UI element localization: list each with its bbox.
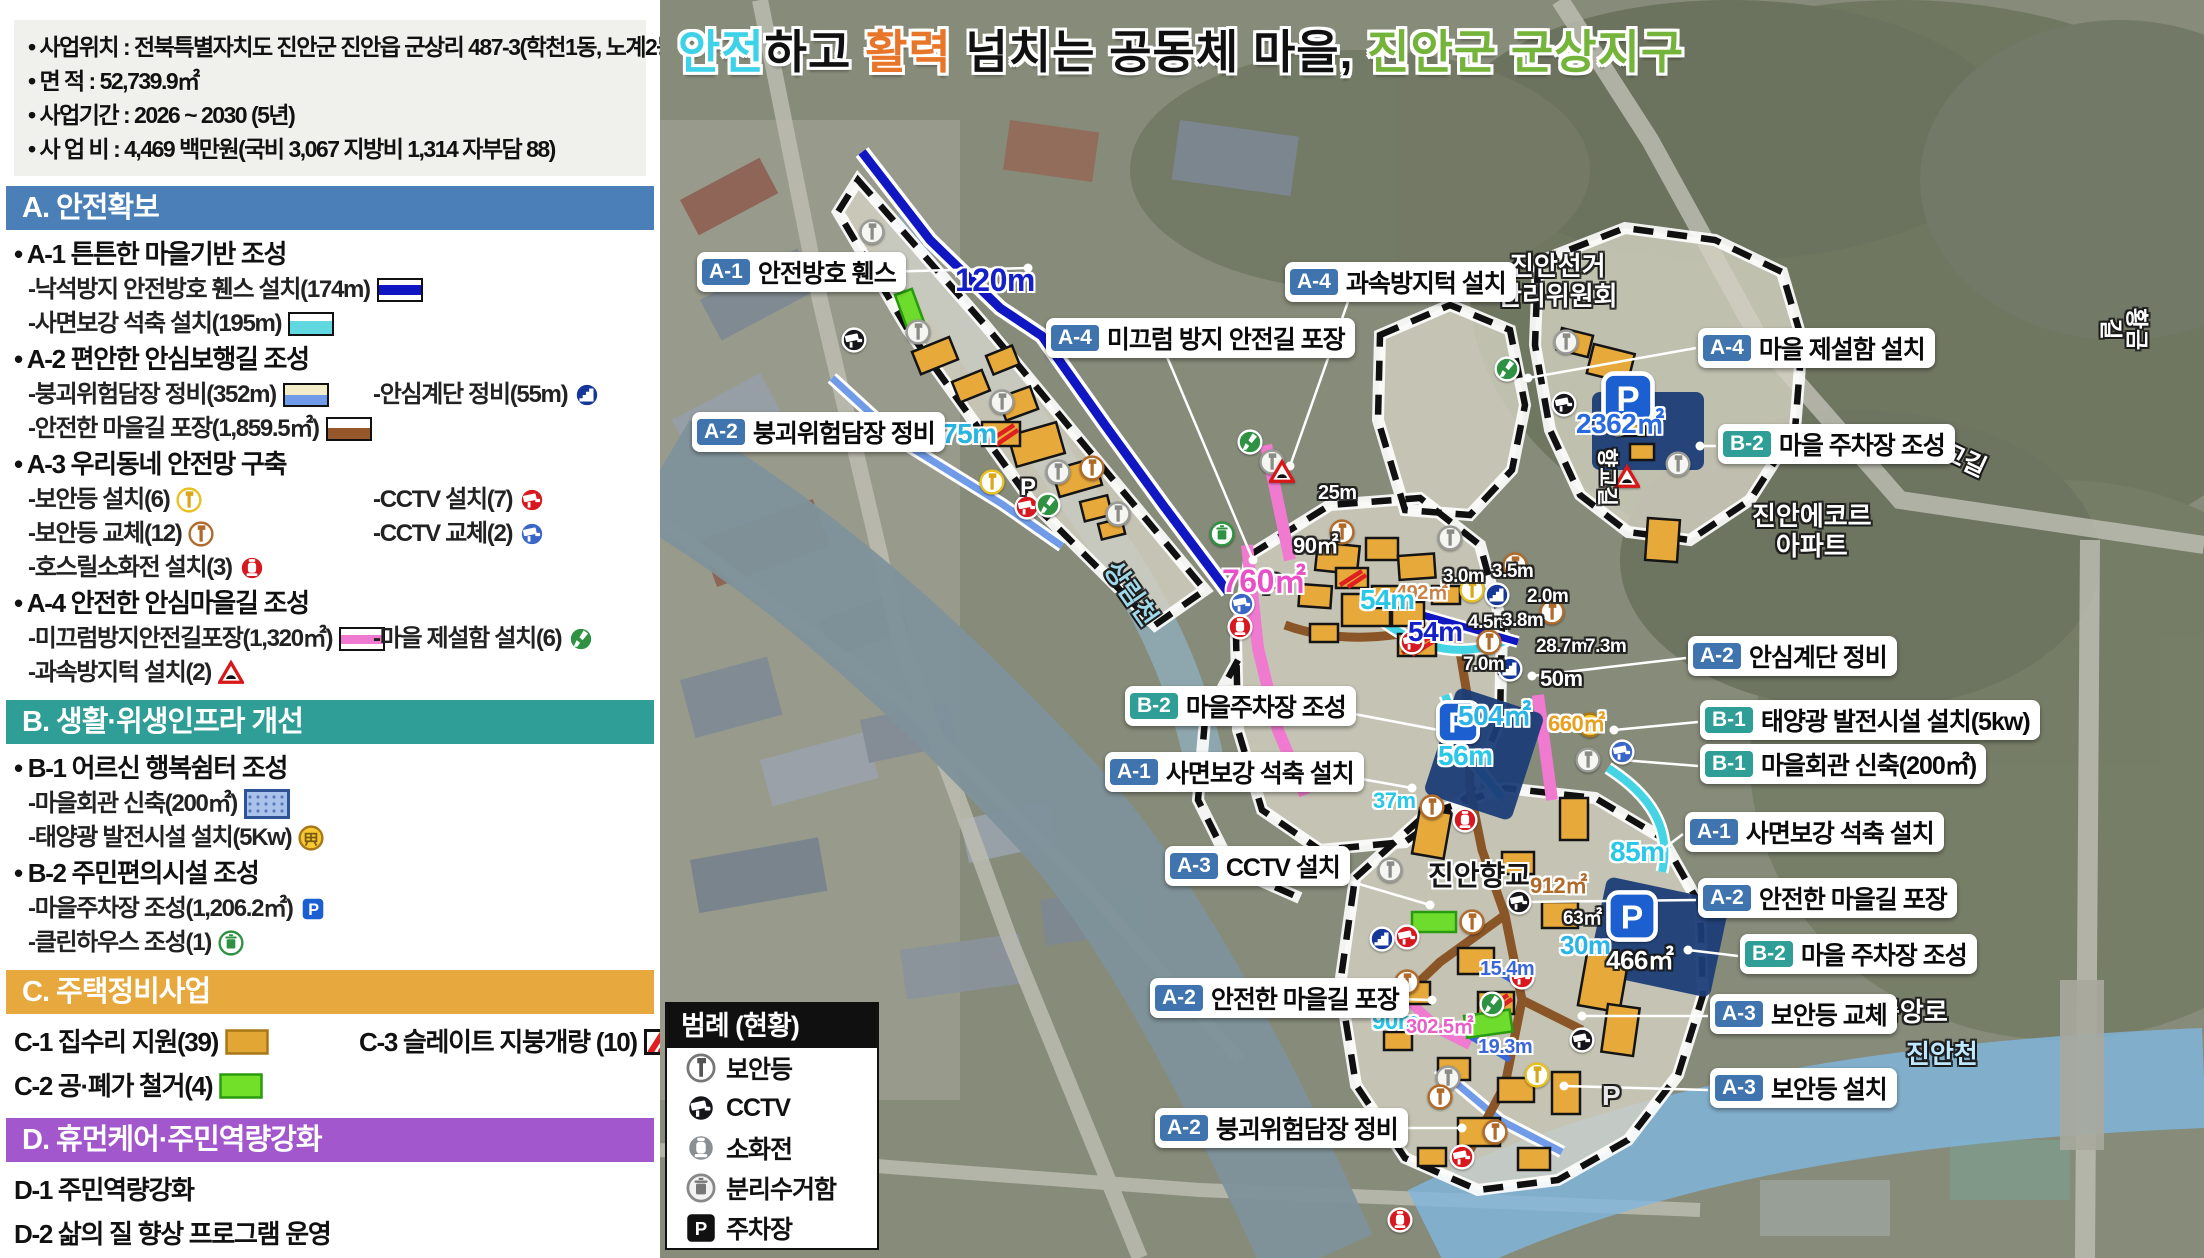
project-info-box: • 사업위치 : 전북특별자치도 진안군 진안읍 군상리 487-3(학천1동,… bbox=[14, 20, 646, 176]
lamp-grey-icon bbox=[905, 319, 931, 345]
callout-label: 마을 주차장 조성 bbox=[1801, 936, 1967, 972]
place-label: P bbox=[1602, 1080, 1621, 1112]
callout-label: 안전방호 휀스 bbox=[758, 254, 896, 290]
item-row: • A-3 우리동네 안전망 구축 bbox=[14, 446, 656, 483]
place-label: P bbox=[1020, 474, 1036, 502]
lamp-yellow-icon bbox=[176, 487, 202, 513]
item-label: D-1 주민역량강화 bbox=[14, 1168, 194, 1212]
item-cell: -과속방지턱 설치(2) bbox=[28, 656, 244, 690]
project-sections: A. 안전확보• A-1 튼튼한 마을기반 조성-낙석방지 안전방호 휀스 설치… bbox=[0, 186, 660, 1256]
item-label: -안전한 마을길 포장(1,859.5㎡) bbox=[28, 412, 319, 446]
bar-navy-icon bbox=[377, 278, 423, 302]
item-cell: • B-1 어르신 행복쉼터 조성 bbox=[14, 750, 287, 787]
cctv-black-icon bbox=[686, 1093, 716, 1123]
lamp-yellow-icon bbox=[1524, 1062, 1550, 1088]
map-callout: A-2붕괴위험담장 정비 bbox=[1155, 1108, 1408, 1148]
item-row: • B-1 어르신 행복쉼터 조성 bbox=[14, 750, 656, 787]
place-label: 진안에코르 아파트 bbox=[1752, 502, 1872, 562]
section-header-d: D. 휴먼케어·주민역량강화 bbox=[6, 1118, 654, 1162]
callout-tag: A-2 bbox=[1703, 885, 1751, 911]
map-title-segment: 하고 bbox=[765, 26, 865, 78]
lamp-grey-icon bbox=[1575, 747, 1601, 773]
measurement-label: 30m bbox=[1560, 930, 1611, 961]
section-header-a: A. 안전확보 bbox=[6, 186, 654, 230]
lamp-grey-icon bbox=[1437, 525, 1463, 551]
place-label: 진안천 bbox=[1906, 1040, 1978, 1070]
legend-rows: 보안등CCTV소화전분리수거함P주차장 bbox=[667, 1048, 877, 1248]
callout-tag: A-2 bbox=[1155, 985, 1203, 1011]
cctv-red-icon bbox=[1449, 1144, 1475, 1170]
callout-label: 붕괴위험담장 정비 bbox=[753, 414, 935, 450]
callout-tag: B-2 bbox=[1745, 941, 1793, 967]
map-callout: B-2마을주차장 조성 bbox=[1125, 686, 1356, 726]
item-row: C-2 공·폐가 철거(4) bbox=[14, 1064, 656, 1108]
item-row: -보안등 설치(6)-CCTV 설치(7) bbox=[14, 483, 656, 517]
callout-label: 마을회관 신축(200㎡) bbox=[1761, 746, 1976, 782]
measurement-label: 90㎡ bbox=[1293, 528, 1338, 560]
measurement-label: 660㎡ bbox=[1548, 706, 1605, 738]
item-label: • A-2 편안한 안심보행길 조성 bbox=[14, 341, 309, 378]
item-cell: -안심계단 정비(55m) bbox=[373, 378, 600, 412]
callout-tag: A-3 bbox=[1715, 1001, 1763, 1027]
item-label: C-1 집수리 지원(39) bbox=[14, 1020, 218, 1064]
map-callout: B-1마을회관 신축(200㎡) bbox=[1700, 744, 1986, 784]
measurement-label: 75m bbox=[942, 418, 997, 450]
snow-green-icon bbox=[1237, 429, 1263, 455]
item-row: C-1 집수리 지원(39)C-3 슬레이트 지붕개량 (10) bbox=[14, 1020, 656, 1064]
item-cell: -보안등 교체(12) bbox=[28, 517, 373, 551]
map-callout: A-1안전방호 휀스 bbox=[697, 252, 906, 292]
map-callout: A-4과속방지턱 설치 bbox=[1285, 262, 1516, 302]
callout-label: 마을 제설함 설치 bbox=[1759, 330, 1925, 366]
speedbump-icon bbox=[218, 660, 244, 686]
item-cell: -보안등 설치(6) bbox=[28, 483, 373, 517]
legend-row-3: 분리수거함 bbox=[667, 1168, 877, 1208]
project-info-line: • 사업위치 : 전북특별자치도 진안군 진안읍 군상리 487-3(학천1동,… bbox=[28, 30, 638, 64]
item-label: D-2 삶의 질 향상 프로그램 운영 bbox=[14, 1212, 330, 1256]
item-label: -과속방지턱 설치(2) bbox=[28, 656, 211, 690]
item-label: C-2 공·폐가 철거(4) bbox=[14, 1064, 212, 1108]
section-body-d: D-1 주민역량강화D-2 삶의 질 향상 프로그램 운영 bbox=[0, 1168, 660, 1256]
legend-label: 분리수거함 bbox=[726, 1170, 836, 1206]
lamp-grey-icon bbox=[1105, 501, 1131, 527]
item-cell: -미끄럼방지안전길포장(1,320㎡) bbox=[28, 622, 373, 656]
project-info-line: • 사 업 비 : 4,469 백만원(국비 3,067 지방비 1,314 자… bbox=[28, 132, 638, 166]
legend-row-0: 보안등 bbox=[667, 1048, 877, 1088]
measurement-label: 7.0m bbox=[1463, 654, 1504, 676]
map-title: 안전하고 활력 넘치는 공동체 마을, 진안군 군상지구 bbox=[678, 16, 1684, 82]
callout-tag: A-4 bbox=[1051, 325, 1099, 351]
measurement-label: 302.5㎡ bbox=[1406, 1010, 1473, 1039]
measurement-label: 63㎡ bbox=[1563, 903, 1602, 930]
place-label: 진안향교 bbox=[1428, 860, 1531, 892]
measurement-label: 466㎡ bbox=[1606, 940, 1673, 977]
lamp-grey-icon bbox=[989, 389, 1015, 415]
item-row: -낙석방지 안전방호 휀스 설치(174m) bbox=[14, 273, 656, 307]
snow-green-icon bbox=[568, 626, 594, 652]
legend-row-2: 소화전 bbox=[667, 1128, 877, 1168]
item-label: -클린하우스 조성(1) bbox=[28, 926, 211, 960]
item-label: -CCTV 교체(2) bbox=[373, 517, 512, 551]
measurement-label: 504㎡ bbox=[1458, 694, 1531, 734]
callout-label: 마을주차장 조성 bbox=[1186, 688, 1346, 724]
callout-tag: A-4 bbox=[1703, 335, 1751, 361]
callout-tag: A-1 bbox=[702, 259, 750, 285]
house-dotted-icon bbox=[244, 789, 290, 819]
item-row: -호스릴소화전 설치(3) bbox=[14, 551, 656, 585]
hydrant-red-icon bbox=[1387, 1207, 1413, 1233]
left-info-panel: • 사업위치 : 전북특별자치도 진안군 진안읍 군상리 487-3(학천1동,… bbox=[0, 0, 660, 1258]
trash-green-icon bbox=[1209, 521, 1235, 547]
lamp-grey-icon bbox=[1377, 857, 1403, 883]
map-callout: A-4미끄럼 방지 안전길 포장 bbox=[1046, 318, 1355, 358]
item-label: C-3 슬레이트 지붕개량 (10) bbox=[359, 1020, 637, 1064]
place-label: 향교길 bbox=[1594, 448, 1618, 506]
measurement-label: 3.0m bbox=[1443, 566, 1484, 588]
map-area: 안전하고 활력 넘치는 공동체 마을, 진안군 군상지구 PPP 120m75m… bbox=[660, 0, 2204, 1258]
map-legend: 범례 (현황) 보안등CCTV소화전분리수거함P주차장 bbox=[665, 1002, 879, 1250]
lamp-grey-icon bbox=[859, 219, 885, 245]
section-body-c: C-1 집수리 지원(39)C-3 슬레이트 지붕개량 (10)C-2 공·폐가… bbox=[0, 1020, 660, 1108]
item-row: D-2 삶의 질 향상 프로그램 운영 bbox=[14, 1212, 656, 1256]
callout-label: 과속방지턱 설치 bbox=[1346, 264, 1506, 300]
map-callout: A-1사면보강 석축 설치 bbox=[1105, 752, 1364, 792]
lamp-grey-icon bbox=[1665, 451, 1691, 477]
callout-label: 안전한 마을길 포장 bbox=[1759, 880, 1947, 916]
map-callout: A-4마을 제설함 설치 bbox=[1698, 328, 1935, 368]
callout-tag: A-2 bbox=[1160, 1115, 1208, 1141]
measurement-label: 15.4m bbox=[1480, 958, 1534, 981]
measurement-label: 28.7m bbox=[1536, 636, 1587, 658]
stairs-navy-icon bbox=[1369, 926, 1395, 952]
lamp-brown-icon bbox=[1079, 455, 1105, 481]
cctv-blue-icon bbox=[1609, 739, 1635, 765]
callout-label: 마을 주차장 조성 bbox=[1779, 426, 1945, 462]
svg-text:P: P bbox=[1621, 898, 1644, 936]
item-label: -마을주차장 조성(1,206.2㎡) bbox=[28, 892, 293, 926]
lamp-grey-icon bbox=[1553, 329, 1579, 355]
cctv-black-icon bbox=[1569, 1027, 1595, 1053]
item-label: -붕괴위험담장 정비(352m) bbox=[28, 378, 276, 412]
item-cell: • A-3 우리동네 안전망 구축 bbox=[14, 446, 286, 483]
item-row: • A-1 튼튼한 마을기반 조성 bbox=[14, 236, 656, 273]
svg-text:P: P bbox=[695, 1218, 708, 1239]
measurement-label: 3.8m bbox=[1502, 610, 1543, 632]
callout-label: 안전한 마을길 포장 bbox=[1211, 980, 1399, 1016]
map-title-segment: 활력 bbox=[865, 26, 952, 78]
parking-blue-icon: P bbox=[300, 896, 326, 922]
callout-tag: B-2 bbox=[1723, 431, 1771, 457]
item-label: • A-3 우리동네 안전망 구축 bbox=[14, 446, 286, 483]
item-row: -태양광 발전시설 설치(5Kw) bbox=[14, 821, 656, 855]
measurement-label: 2362㎡ bbox=[1576, 402, 1664, 442]
item-row: -과속방지턱 설치(2) bbox=[14, 656, 656, 690]
map-callout: B-1태양광 발전시설 설치(5kw) bbox=[1700, 700, 2040, 740]
item-row: -마을회관 신축(200㎡) bbox=[14, 787, 656, 821]
section-body-b: • B-1 어르신 행복쉼터 조성-마을회관 신축(200㎡)-태양광 발전시설… bbox=[0, 750, 660, 960]
stairs-navy-icon bbox=[574, 382, 600, 408]
hydrant-red-icon bbox=[1452, 807, 1478, 833]
map-callout: A-1사면보강 석축 설치 bbox=[1685, 812, 1944, 852]
item-cell: D-2 삶의 질 향상 프로그램 운영 bbox=[14, 1212, 330, 1256]
section-body-a: • A-1 튼튼한 마을기반 조성-낙석방지 안전방호 휀스 설치(174m)-… bbox=[0, 236, 660, 690]
callout-tag: A-1 bbox=[1690, 819, 1738, 845]
project-info-line: • 면 적 : 52,739.9㎡ bbox=[28, 64, 638, 98]
parking-black-icon: P bbox=[686, 1213, 716, 1243]
callout-tag: A-3 bbox=[1170, 853, 1218, 879]
map-title-segment: 진안군 군상지구 bbox=[1367, 26, 1684, 78]
item-row: -마을주차장 조성(1,206.2㎡)P bbox=[14, 892, 656, 926]
rect-green-icon bbox=[219, 1073, 263, 1099]
place-label: 황금길 bbox=[2097, 302, 2150, 356]
item-row: • A-4 안전한 안심마을길 조성 bbox=[14, 585, 656, 622]
item-cell: -사면보강 석축 설치(195m) bbox=[28, 307, 334, 341]
item-label: -낙석방지 안전방호 휀스 설치(174m) bbox=[28, 273, 370, 307]
measurement-label: 120m bbox=[955, 262, 1035, 299]
item-cell: -태양광 발전시설 설치(5Kw) bbox=[28, 821, 324, 855]
bar-brown-icon bbox=[326, 417, 372, 441]
speedbump-icon bbox=[1269, 459, 1295, 485]
callout-label: 사면보강 석축 설치 bbox=[1746, 814, 1934, 850]
bar-cyan-icon bbox=[288, 312, 334, 336]
lamp-brown-icon bbox=[1482, 1119, 1508, 1145]
item-cell: • A-4 안전한 안심마을길 조성 bbox=[14, 585, 309, 622]
item-cell: -CCTV 설치(7) bbox=[373, 483, 545, 517]
project-info-line: • 사업기간 : 2026 ~ 2030 (5년) bbox=[28, 98, 638, 132]
callout-tag: A-1 bbox=[1110, 759, 1158, 785]
snow-green-icon bbox=[1479, 991, 1505, 1017]
item-cell: -CCTV 교체(2) bbox=[373, 517, 545, 551]
callout-tag: B-1 bbox=[1705, 751, 1753, 777]
trash-green-icon bbox=[218, 930, 244, 956]
item-label: -미끄럼방지안전길포장(1,320㎡) bbox=[28, 622, 332, 656]
measurement-label: 56m bbox=[1438, 740, 1493, 772]
lamp-brown-icon bbox=[1419, 794, 1445, 820]
item-row: -사면보강 석축 설치(195m) bbox=[14, 307, 656, 341]
lamp-brown-icon bbox=[188, 521, 214, 547]
item-cell: D-1 주민역량강화 bbox=[14, 1168, 194, 1212]
measurement-label: 19.3m bbox=[1478, 1036, 1532, 1059]
item-row: • A-2 편안한 안심보행길 조성 bbox=[14, 341, 656, 378]
measurement-label: 7.3m bbox=[1585, 636, 1626, 658]
map-title-segment: 안전 bbox=[678, 26, 765, 78]
section-header-c: C. 주택정비사업 bbox=[6, 970, 654, 1014]
map-callout: B-2마을 주차장 조성 bbox=[1718, 424, 1955, 464]
item-cell: C-3 슬레이트 지붕개량 (10) bbox=[359, 1020, 660, 1064]
measurement-label: 85m bbox=[1610, 836, 1665, 868]
hydrant-red-icon bbox=[1227, 614, 1253, 640]
item-cell: -낙석방지 안전방호 휀스 설치(174m) bbox=[28, 273, 423, 307]
item-label: -호스릴소화전 설치(3) bbox=[28, 551, 232, 585]
item-cell: -마을회관 신축(200㎡) bbox=[28, 787, 290, 821]
solar-yellow-icon bbox=[298, 825, 324, 851]
callout-label: 미끄럼 방지 안전길 포장 bbox=[1107, 320, 1345, 356]
map-callout: A-3보안등 교체 bbox=[1710, 994, 1897, 1034]
hydrant-red-icon bbox=[239, 555, 265, 581]
item-label: • B-1 어르신 행복쉼터 조성 bbox=[14, 750, 287, 787]
map-callout: A-2안심계단 정비 bbox=[1688, 636, 1897, 676]
snow-green-icon bbox=[1035, 492, 1061, 518]
item-label: • A-1 튼튼한 마을기반 조성 bbox=[14, 236, 286, 273]
measurement-label: 54m bbox=[1408, 616, 1463, 648]
item-label: -마을 제설함 설치(6) bbox=[373, 622, 561, 656]
item-label: -마을회관 신축(200㎡) bbox=[28, 787, 237, 821]
item-cell: -마을 제설함 설치(6) bbox=[373, 622, 594, 656]
snow-green-icon bbox=[1494, 356, 1520, 382]
map-callout: B-2마을 주차장 조성 bbox=[1740, 934, 1977, 974]
trash-grey-icon bbox=[686, 1173, 716, 1203]
item-label: -보안등 교체(12) bbox=[28, 517, 181, 551]
item-label: -안심계단 정비(55m) bbox=[373, 378, 567, 412]
lamp-brown-icon bbox=[1459, 909, 1485, 935]
cctv-blue-icon bbox=[519, 521, 545, 547]
lamp-brown-icon bbox=[1427, 1084, 1453, 1110]
stairs-navy-icon bbox=[1484, 582, 1510, 608]
item-cell: -마을주차장 조성(1,206.2㎡)P bbox=[28, 892, 326, 926]
item-row: -붕괴위험담장 정비(352m)-안심계단 정비(55m) bbox=[14, 378, 656, 412]
callout-label: 사면보강 석축 설치 bbox=[1166, 754, 1354, 790]
poster-root: • 사업위치 : 전북특별자치도 진안군 진안읍 군상리 487-3(학천1동,… bbox=[0, 0, 2204, 1258]
rect-hatched-icon bbox=[644, 1029, 660, 1055]
item-label: -보안등 설치(6) bbox=[28, 483, 169, 517]
callout-label: 보안등 교체 bbox=[1771, 996, 1887, 1032]
measurement-label: 25m bbox=[1318, 482, 1357, 505]
legend-label: 주차장 bbox=[726, 1210, 792, 1246]
item-cell: • B-2 주민편의시설 조성 bbox=[14, 855, 259, 892]
item-label: -CCTV 설치(7) bbox=[373, 483, 512, 517]
item-cell: • A-1 튼튼한 마을기반 조성 bbox=[14, 236, 286, 273]
item-cell: -안전한 마을길 포장(1,859.5㎡) bbox=[28, 412, 372, 446]
callout-tag: A-3 bbox=[1715, 1075, 1763, 1101]
map-callout: A-2붕괴위험담장 정비 bbox=[692, 412, 945, 452]
lamp-white-icon bbox=[686, 1053, 716, 1083]
map-title-segment: 넘치는 공동체 마을, bbox=[952, 26, 1367, 78]
callout-label: 태양광 발전시설 설치(5kw) bbox=[1761, 702, 2030, 738]
item-cell: -호스릴소화전 설치(3) bbox=[28, 551, 265, 585]
legend-title: 범례 (현황) bbox=[667, 1004, 877, 1048]
map-callout: A-3CCTV 설치 bbox=[1165, 846, 1350, 886]
callout-label: 보안등 설치 bbox=[1771, 1070, 1887, 1106]
cctv-black-icon bbox=[841, 327, 867, 353]
cctv-black-icon bbox=[1551, 391, 1577, 417]
item-label: • A-4 안전한 안심마을길 조성 bbox=[14, 585, 309, 622]
callout-tag: A-2 bbox=[1693, 643, 1741, 669]
map-callout: A-2안전한 마을길 포장 bbox=[1698, 878, 1957, 918]
measurement-label: 54m bbox=[1360, 584, 1415, 616]
callout-tag: A-4 bbox=[1290, 269, 1338, 295]
measurement-label: 50m bbox=[1540, 666, 1583, 692]
lamp-yellow-icon bbox=[979, 469, 1005, 495]
item-label: -사면보강 석축 설치(195m) bbox=[28, 307, 281, 341]
item-cell: C-1 집수리 지원(39) bbox=[14, 1020, 359, 1064]
parking-blue-icon: P bbox=[1605, 889, 1659, 943]
cctv-black-icon bbox=[1506, 889, 1532, 915]
cctv-red-icon bbox=[519, 487, 545, 513]
callout-label: 붕괴위험담장 정비 bbox=[1216, 1110, 1398, 1146]
lamp-grey-icon bbox=[1045, 459, 1071, 485]
callout-tag: B-1 bbox=[1705, 707, 1753, 733]
legend-row-4: P주차장 bbox=[667, 1208, 877, 1248]
map-callout: A-2안전한 마을길 포장 bbox=[1150, 978, 1409, 1018]
rect-gold-icon bbox=[225, 1029, 269, 1055]
callout-label: CCTV 설치 bbox=[1226, 848, 1340, 884]
callout-tag: A-2 bbox=[697, 419, 745, 445]
measurement-label: 760㎡ bbox=[1222, 556, 1305, 602]
callout-label: 안심계단 정비 bbox=[1749, 638, 1887, 674]
cctv-red-icon bbox=[1394, 924, 1420, 950]
place-label: 진안선거 관리위원회 bbox=[1498, 252, 1618, 312]
svg-text:P: P bbox=[308, 901, 319, 919]
section-header-b: B. 생활·위생인프라 개선 bbox=[6, 700, 654, 744]
measurement-label: 2.0m bbox=[1527, 586, 1568, 608]
item-cell: -클린하우스 조성(1) bbox=[28, 926, 244, 960]
legend-label: CCTV bbox=[726, 1094, 790, 1123]
item-row: D-1 주민역량강화 bbox=[14, 1168, 656, 1212]
item-row: -보안등 교체(12)-CCTV 교체(2) bbox=[14, 517, 656, 551]
legend-row-1: CCTV bbox=[667, 1088, 877, 1128]
item-row: • B-2 주민편의시설 조성 bbox=[14, 855, 656, 892]
item-row: -미끄럼방지안전길포장(1,320㎡)-마을 제설함 설치(6) bbox=[14, 622, 656, 656]
measurement-label: 912㎡ bbox=[1530, 868, 1587, 900]
bridge bbox=[2060, 980, 2104, 1150]
map-callout: A-3보안등 설치 bbox=[1710, 1068, 1897, 1108]
hydrant-grey-icon bbox=[686, 1133, 716, 1163]
bar-blue-icon bbox=[283, 383, 329, 407]
item-cell: C-2 공·폐가 철거(4) bbox=[14, 1064, 263, 1108]
item-label: -태양광 발전시설 설치(5Kw) bbox=[28, 821, 291, 855]
measurement-label: 3.5m bbox=[1492, 561, 1533, 583]
callout-tag: B-2 bbox=[1130, 693, 1178, 719]
legend-label: 보안등 bbox=[726, 1050, 792, 1086]
item-row: -안전한 마을길 포장(1,859.5㎡) bbox=[14, 412, 656, 446]
legend-label: 소화전 bbox=[726, 1130, 792, 1166]
item-cell: -붕괴위험담장 정비(352m) bbox=[28, 378, 373, 412]
item-label: • B-2 주민편의시설 조성 bbox=[14, 855, 259, 892]
item-cell: • A-2 편안한 안심보행길 조성 bbox=[14, 341, 309, 378]
measurement-label: 37m bbox=[1373, 788, 1416, 814]
item-row: -클린하우스 조성(1) bbox=[14, 926, 656, 960]
